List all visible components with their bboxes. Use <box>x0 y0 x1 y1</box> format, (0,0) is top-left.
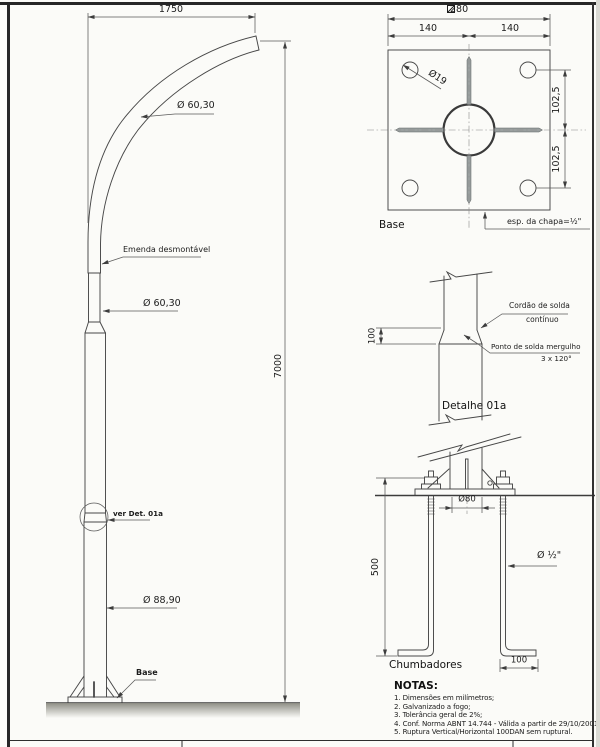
title-block-edge <box>9 741 594 747</box>
sheet-border-left <box>7 2 10 747</box>
detail-reference-label: ver Det. 01a <box>113 510 163 518</box>
continuous-weld-label-2: contínuo <box>526 316 559 324</box>
dim-500: 500 <box>371 558 381 576</box>
ground-shading <box>46 703 300 718</box>
pole-dimensions <box>88 13 291 702</box>
dim-square-280: 280 <box>447 5 468 15</box>
bolt-diameter-label: Ø ½" <box>537 551 561 561</box>
arm-diameter-label: Ø 60,30 <box>177 101 215 111</box>
sheet-border-top <box>0 2 600 5</box>
shaft-diameter-label: Ø 60,30 <box>143 299 181 309</box>
continuous-weld-label-1: Cordão de solda <box>509 302 570 310</box>
dim-102-upper: 102,5 <box>552 86 562 113</box>
plate-thickness-label: esp. da chapa=½" <box>507 218 581 226</box>
notes-block: NOTAS: 1. Dimensões em milímetros; 2. Ga… <box>394 680 594 737</box>
scan-edge <box>596 0 600 747</box>
drawing-linework <box>0 0 600 747</box>
dim-140-right: 140 <box>501 24 519 34</box>
splice-label: Emenda desmontável <box>123 246 210 254</box>
sheet-border-right <box>592 2 594 747</box>
dim-overlap-100: 100 <box>369 328 378 344</box>
dim-140-left: 140 <box>419 24 437 34</box>
dim-7000: 7000 <box>274 354 284 378</box>
base-view-title: Base <box>379 220 405 231</box>
note-item: 5. Ruptura Vertical/Horizontal 100DAN se… <box>394 728 594 737</box>
spot-weld-label-1: Ponto de solda mergulho <box>491 343 581 351</box>
notes-title: NOTAS: <box>394 680 594 692</box>
base-plate-dimensions <box>388 14 590 229</box>
technical-drawing-sheet: 1750 7000 Ø 60,30 Emenda desmontável Ø 6… <box>0 0 600 747</box>
dim-1750: 1750 <box>159 5 183 15</box>
base-plate-outline <box>367 44 586 228</box>
weld-detail-title: Detalhe 01a <box>442 401 506 412</box>
anchor-bolts-outline <box>375 434 595 656</box>
dim-102-lower: 102,5 <box>552 145 562 172</box>
dim-bolt-spacing: Ø80 <box>458 496 476 505</box>
base-diameter-label: Ø 88,90 <box>143 596 181 606</box>
pole-base-label: Base <box>136 669 158 677</box>
spot-weld-label-2: 3 x 120° <box>541 355 572 363</box>
anchor-bolts-dimensions <box>376 478 557 672</box>
anchor-bolts-title: Chumbadores <box>389 660 462 671</box>
dim-hook-100: 100 <box>511 657 527 666</box>
